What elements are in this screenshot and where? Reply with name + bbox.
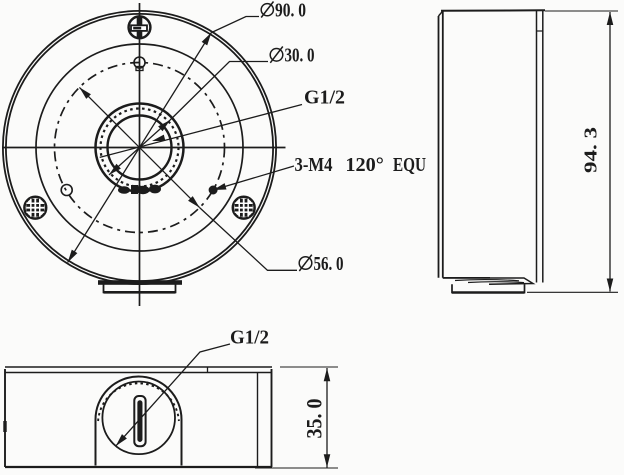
svg-text:94. 3: 94. 3 (581, 127, 601, 173)
svg-text:120°: 120° (345, 154, 384, 176)
svg-text:90. 0: 90. 0 (275, 0, 306, 22)
svg-text:3-M4: 3-M4 (295, 154, 333, 176)
svg-text:EQU: EQU (393, 154, 426, 176)
svg-text:G1/2: G1/2 (304, 87, 345, 109)
svg-text:G1/2: G1/2 (230, 327, 269, 349)
svg-text:30. 0: 30. 0 (285, 45, 315, 67)
svg-text:35. 0: 35. 0 (301, 399, 326, 439)
svg-text:56. 0: 56. 0 (314, 253, 344, 275)
